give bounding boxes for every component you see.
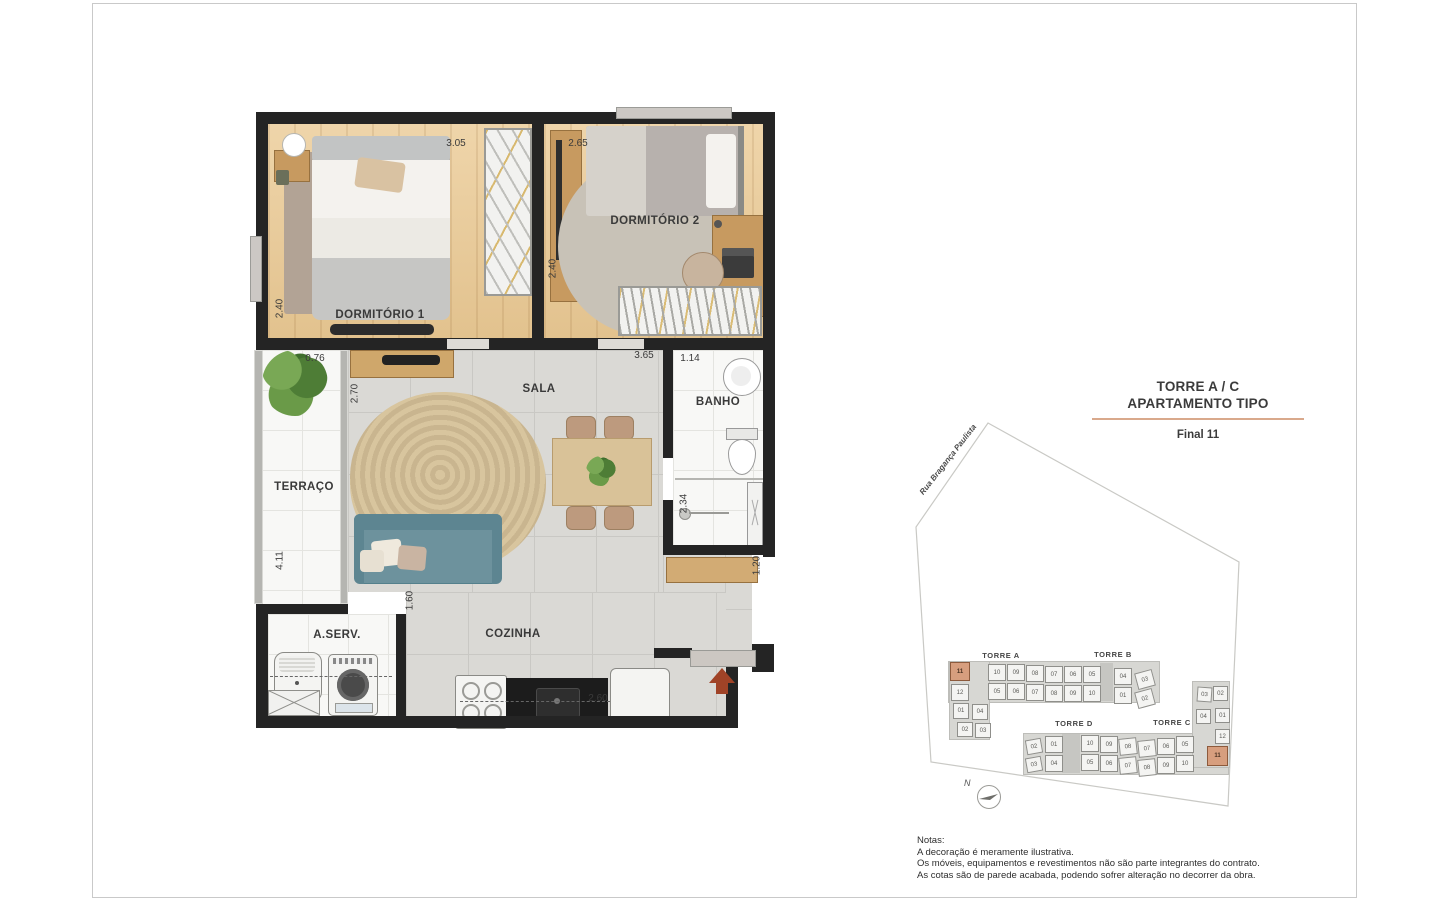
room-label-banho: BANHO (648, 396, 788, 408)
site-unit: 03 (1025, 756, 1043, 774)
site-unit: 02 (1134, 688, 1156, 709)
site-unit: 07 (1118, 756, 1138, 775)
dimension-label: 4.11 (275, 544, 286, 578)
site-unit: 03 (975, 723, 991, 738)
dimension-label: 3.65 (627, 350, 661, 361)
dimension-label: 1.14 (673, 353, 707, 364)
site-unit: 09 (1007, 664, 1025, 681)
site-unit: 09 (1064, 685, 1082, 702)
site-unit: 02 (957, 722, 973, 737)
site-unit: 07 (1045, 666, 1063, 683)
site-unit: 08 (1137, 758, 1157, 777)
dimension-label: 1.20 (752, 549, 763, 583)
dimension-label: 2.40 (548, 252, 559, 286)
notes-line-2: Os móveis, equipamentos e revestimentos … (917, 858, 1347, 870)
dimension-label: 2.34 (679, 487, 690, 521)
dimension-label: 2.70 (350, 377, 361, 411)
room-label-cozinha: COZINHA (443, 628, 583, 640)
site-unit-highlighted: 11 (1207, 746, 1228, 766)
site-unit: 06 (1064, 666, 1082, 683)
site-unit: 01 (1215, 708, 1230, 723)
site-unit: 07 (1026, 684, 1044, 701)
site-unit: 08 (1026, 665, 1044, 682)
site-unit: 10 (1081, 735, 1099, 752)
site-unit: 09 (1157, 757, 1175, 774)
dimension-label: 0.76 (298, 353, 332, 364)
notes-heading: Notas: (917, 835, 1347, 847)
site-unit: 12 (1215, 729, 1230, 744)
site-unit: 06 (1157, 738, 1175, 755)
site-unit: 01 (953, 703, 969, 719)
site-unit: 10 (1176, 755, 1194, 772)
dimension-label: 2.65 (561, 138, 595, 149)
site-unit-highlighted: 11 (950, 662, 970, 681)
site-unit: 05 (1083, 666, 1101, 683)
site-unit: 08 (1118, 737, 1138, 756)
site-unit: 09 (1100, 736, 1118, 753)
room-label-sala: SALA (469, 383, 609, 395)
site-unit: 02 (1213, 686, 1228, 701)
site-unit: 10 (1083, 685, 1101, 702)
page-canvas: TORRE A / C APARTAMENTO TIPO Final 11 Ru… (0, 0, 1440, 900)
north-needle (978, 786, 1000, 808)
site-unit: 12 (951, 684, 969, 701)
site-unit: 07 (1137, 739, 1157, 758)
site-unit: 04 (972, 704, 988, 720)
site-unit: 08 (1045, 685, 1063, 702)
site-unit: 05 (1176, 736, 1194, 753)
site-unit: 03 (1196, 686, 1212, 702)
site-unit: 04 (1114, 668, 1132, 685)
notes-line-1: A decoração é meramente ilustrativa. (917, 847, 1347, 859)
dimension-label: 2.40 (275, 292, 286, 326)
site-unit: 05 (988, 683, 1006, 700)
site-unit: 05 (1081, 754, 1099, 771)
site-unit: 02 (1025, 738, 1043, 756)
site-unit: 04 (1196, 709, 1211, 724)
site-unit: 10 (988, 664, 1006, 681)
dynamic-layer: DORMITÓRIO 1DORMITÓRIO 2SALATERRAÇOBANHO… (0, 0, 1440, 900)
site-unit: 04 (1045, 755, 1063, 772)
site-unit: 03 (1134, 669, 1156, 690)
dimension-label: 1.60 (405, 584, 416, 618)
site-unit: 06 (1007, 683, 1025, 700)
room-label-terraco: TERRAÇO (234, 481, 374, 493)
site-unit: 01 (1045, 736, 1063, 753)
room-label-dormitorio-2: DORMITÓRIO 2 (585, 215, 725, 227)
site-unit: 06 (1100, 755, 1118, 772)
notes-line-3: As cotas são de parede acabada, podendo … (917, 870, 1347, 882)
room-label-dormitorio-1: DORMITÓRIO 1 (310, 309, 450, 321)
site-unit: 01 (1114, 687, 1132, 704)
notes-block: Notas: A decoração é meramente ilustrati… (917, 835, 1347, 881)
tower-label-torre-b: TORRE B (1068, 650, 1158, 659)
tower-label-torre-a: TORRE A (956, 651, 1046, 660)
room-label-area-servico: A.SERV. (267, 629, 407, 641)
north-arrow-icon (977, 785, 1001, 809)
dimension-label: 3.05 (439, 138, 473, 149)
north-label: N (964, 778, 971, 788)
tower-label-torre-d: TORRE D (1029, 719, 1119, 728)
dimension-label: 2.60 (581, 693, 615, 704)
